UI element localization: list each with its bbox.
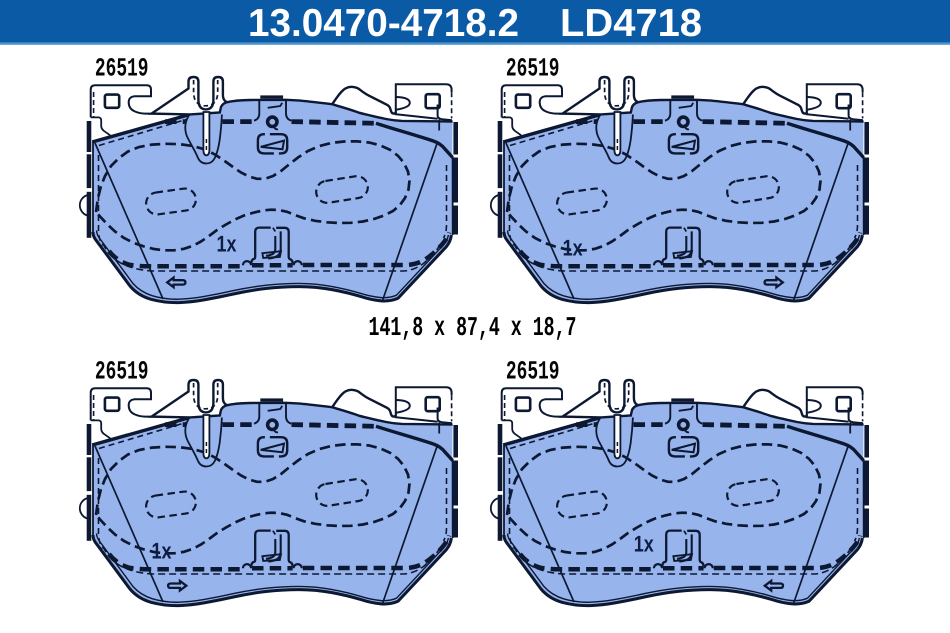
svg-text:1x: 1x: [217, 230, 237, 256]
svg-text:LD4718: LD4718: [560, 2, 702, 45]
svg-text:1x: 1x: [152, 538, 172, 564]
svg-text:1x: 1x: [634, 531, 654, 557]
svg-text:26519: 26519: [506, 357, 560, 387]
svg-text:1x: 1x: [563, 234, 583, 260]
svg-text:13.0470-4718.2: 13.0470-4718.2: [248, 2, 519, 45]
svg-text:141,8 x 87,4 x 18,7: 141,8 x 87,4 x 18,7: [369, 313, 577, 344]
svg-text:26519: 26519: [95, 54, 149, 84]
svg-text:26519: 26519: [95, 357, 149, 387]
svg-text:26519: 26519: [506, 54, 560, 84]
